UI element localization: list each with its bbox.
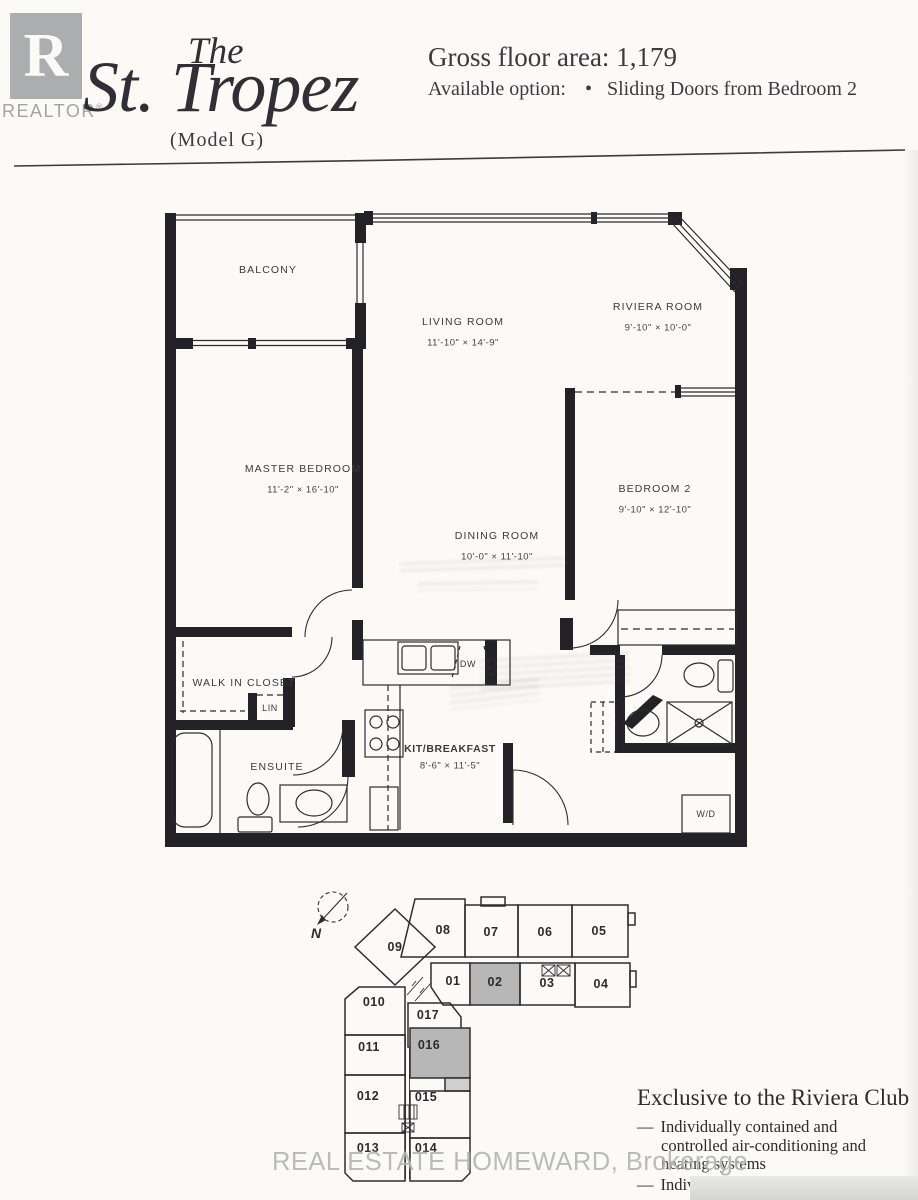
north-label: N: [311, 925, 321, 941]
available-option: Available option: • Sliding Doors from B…: [428, 78, 857, 101]
room-dims-kitchen: 8'-6" × 11'-5": [420, 761, 480, 772]
scan-shadow-right: [902, 150, 918, 1200]
option-bullet: •: [585, 78, 592, 100]
realtor-brand-text: REALTOR: [2, 101, 96, 121]
label-washer-dryer: W/D: [696, 809, 715, 819]
balcony-divider-wall: [355, 213, 366, 349]
available-option-value: Sliding Doors from Bedroom 2: [607, 78, 857, 100]
label-dishwasher: DW: [460, 659, 476, 669]
scan-shadow-bottom: [690, 1176, 918, 1200]
balcony-rail: [176, 215, 355, 220]
building-keyplan: 09 08 07 06 05 01 02 03 04 010 017 011 0…: [295, 885, 640, 1185]
unit-05: 05: [592, 924, 607, 938]
north-compass-icon: [317, 892, 348, 925]
gross-floor-area-label: Gross floor area:: [428, 42, 609, 72]
note-dash: —: [637, 1175, 654, 1194]
unit-03: 03: [540, 976, 555, 990]
room-label-riviera: RIVIERA ROOM: [613, 301, 703, 313]
unit-015: 015: [415, 1090, 437, 1104]
linen-closet: [591, 702, 616, 752]
room-label-dining: DINING ROOM: [455, 530, 539, 542]
room-label-walkin: WALK IN CLOSET: [192, 677, 295, 689]
room-dims-riviera: 9'-10" × 10'-0": [625, 323, 692, 334]
gross-floor-area: Gross floor area: 1,179: [428, 42, 677, 73]
available-option-label: Available option:: [428, 78, 566, 100]
toilet-icon: [238, 783, 272, 832]
gross-floor-area-value: 1,179: [616, 42, 677, 72]
unit-011: 011: [358, 1040, 380, 1054]
realtor-logo-letter: R: [24, 25, 69, 87]
room-label-balcony: BALCONY: [239, 264, 297, 276]
bathtub-icon: [172, 730, 220, 833]
room-label-bedroom2: BEDROOM 2: [619, 483, 692, 495]
balcony-sliding-door: [165, 338, 366, 349]
header-rule: [0, 140, 918, 172]
room-label-lin: LIN: [262, 703, 278, 713]
room-label-kitchen: KIT/BREAKFAST: [404, 743, 496, 755]
unit-06: 06: [538, 925, 553, 939]
unit-01: 01: [446, 974, 461, 988]
unit-016: 016: [418, 1038, 440, 1052]
page-title: St. Tropez: [83, 46, 358, 129]
note-dash: —: [637, 1117, 654, 1136]
unit-02: 02: [488, 975, 503, 989]
unit-08: 08: [436, 923, 451, 937]
room-label-living: LIVING ROOM: [422, 316, 504, 328]
unit-010: 010: [363, 995, 385, 1009]
kitchen-cabinet: [370, 787, 398, 830]
keyplan-drawing: [295, 885, 640, 1185]
bath2-toilet-icon: [684, 660, 733, 692]
stairwell-icon: [399, 1105, 417, 1132]
stove-icon: [365, 710, 403, 757]
unit-09: 09: [388, 940, 403, 954]
room-dims-living: 11'-10" × 14'-9": [427, 338, 499, 349]
bedroom2-closet: [618, 610, 737, 645]
room-dims-dining: 10'-0" × 11'-10": [461, 552, 533, 563]
room-dims-master: 11'-2" × 16'-10": [267, 485, 339, 496]
realtor-logo: R: [10, 13, 82, 99]
unit-012: 012: [357, 1089, 379, 1103]
unit-07: 07: [484, 925, 499, 939]
vanity-sink-icon: [280, 785, 347, 822]
floorplan: BALCONY LIVING ROOM 11'-10" × 14'-9" RIV…: [150, 208, 770, 868]
room-label-ensuite: ENSUITE: [250, 761, 303, 773]
brokerage-watermark: REAL ESTATE HOMEWARD, Brokerage: [272, 1148, 732, 1177]
unit-04: 04: [594, 977, 609, 991]
notes-title: Exclusive to the Riviera Club: [637, 1085, 899, 1111]
room-dims-bedroom2: 9'-10" × 12'-10": [619, 505, 692, 516]
shower-icon: [667, 702, 732, 744]
window-band: [373, 214, 743, 292]
unit-017: 017: [417, 1008, 439, 1022]
scanned-floorplan-page: { "colors": { "paper": "#fbfaf6", "ink":…: [0, 0, 918, 1200]
room-label-master: MASTER BEDROOM: [245, 463, 361, 475]
elevator-icons: [542, 965, 570, 976]
optional-sliding-door-wall: [575, 385, 735, 398]
